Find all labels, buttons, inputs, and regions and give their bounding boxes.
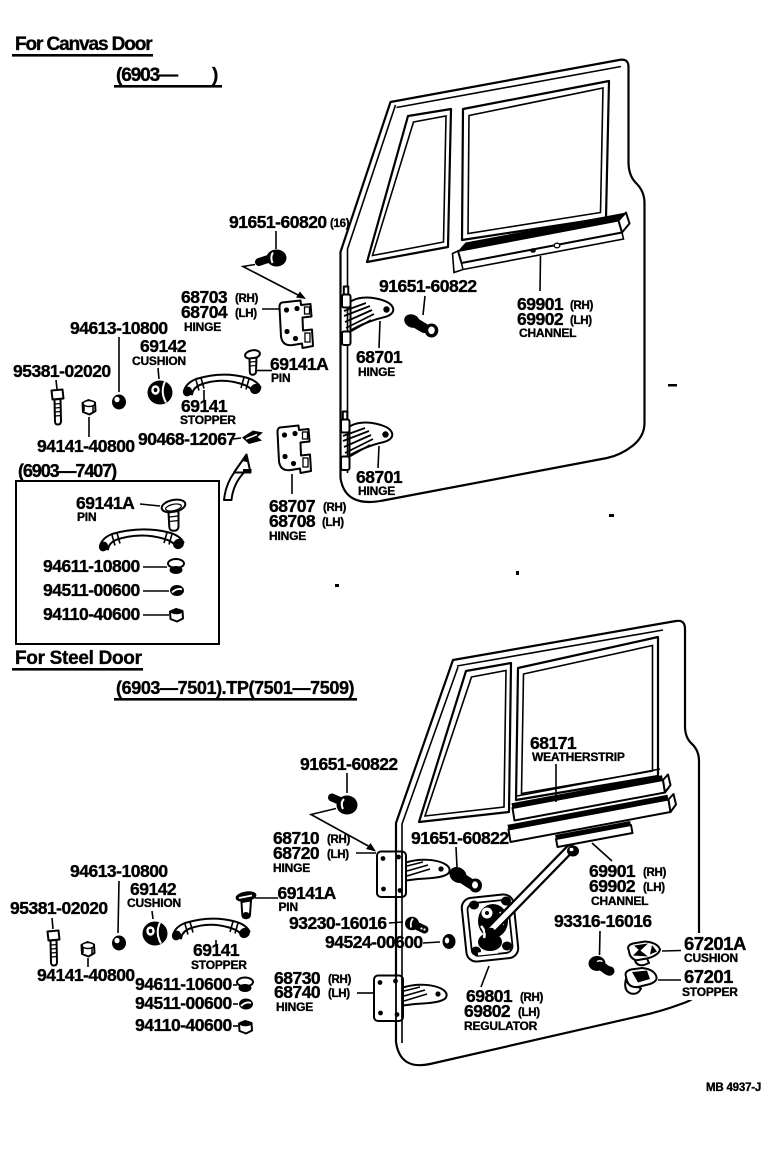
svg-text:94511-00600: 94511-00600 <box>43 580 140 600</box>
svg-text:95381-02020: 95381-02020 <box>10 898 108 918</box>
svg-text:(6903—7501).TP(7501—7509): (6903—7501).TP(7501—7509) <box>116 678 355 698</box>
svg-text:CUSHION: CUSHION <box>132 354 186 368</box>
svg-text:(RH): (RH) <box>643 867 667 879</box>
svg-text:94141-40800: 94141-40800 <box>37 965 135 985</box>
svg-text:(LH): (LH) <box>643 882 665 894</box>
svg-text:68708: 68708 <box>269 511 316 531</box>
svg-text:CHANNEL: CHANNEL <box>519 326 576 340</box>
svg-text:69141: 69141 <box>193 940 240 960</box>
svg-text:91651-60822: 91651-60822 <box>411 828 509 848</box>
svg-text:94613-10800: 94613-10800 <box>70 861 168 881</box>
svg-text:93316-16016: 93316-16016 <box>554 911 652 931</box>
svg-text:68704: 68704 <box>181 302 228 322</box>
svg-text:CHANNEL: CHANNEL <box>591 894 648 908</box>
svg-text:94110-40600: 94110-40600 <box>135 1015 232 1035</box>
svg-text:91651-60820: 91651-60820 <box>229 212 327 232</box>
svg-text:68701: 68701 <box>356 347 403 367</box>
svg-text:REGULATOR: REGULATOR <box>464 1019 538 1033</box>
svg-text:CUSHION: CUSHION <box>684 951 738 965</box>
svg-text:69802: 69802 <box>464 1001 511 1021</box>
svg-text:(RH): (RH) <box>323 502 347 514</box>
svg-text:(6903—7407): (6903—7407) <box>18 461 117 481</box>
svg-text:94613-10800: 94613-10800 <box>70 318 168 338</box>
svg-text:(LH): (LH) <box>322 517 344 529</box>
svg-text:(LH): (LH) <box>235 308 257 320</box>
svg-text:69902: 69902 <box>589 876 636 896</box>
svg-text:94110-40600: 94110-40600 <box>43 604 140 624</box>
svg-text:HINGE: HINGE <box>358 365 395 379</box>
svg-text:67201: 67201 <box>684 966 733 987</box>
svg-text:STOPPER: STOPPER <box>191 958 247 972</box>
svg-text:HINGE: HINGE <box>269 529 306 543</box>
svg-text:94611-10800: 94611-10800 <box>43 556 140 576</box>
svg-text:STOPPER: STOPPER <box>180 413 236 427</box>
svg-text:94511-00600: 94511-00600 <box>135 993 232 1013</box>
svg-text:68740: 68740 <box>274 982 321 1002</box>
svg-text:69142: 69142 <box>140 336 187 356</box>
svg-text:MB 4937-J: MB 4937-J <box>706 1082 761 1094</box>
svg-text:(16): (16) <box>330 218 350 230</box>
svg-text:94611-10600: 94611-10600 <box>135 974 232 994</box>
svg-text:91651-60822: 91651-60822 <box>300 754 398 774</box>
svg-text:): ) <box>212 65 218 86</box>
svg-text:(RH): (RH) <box>235 293 259 305</box>
svg-text:90468-12067: 90468-12067 <box>138 429 236 449</box>
svg-text:94141-40800: 94141-40800 <box>37 436 135 456</box>
svg-text:(RH): (RH) <box>327 834 351 846</box>
svg-text:HINGE: HINGE <box>276 1000 313 1014</box>
svg-text:94524-00600: 94524-00600 <box>325 932 423 952</box>
svg-text:(RH): (RH) <box>570 300 594 312</box>
svg-text:(6903—: (6903— <box>116 65 178 86</box>
svg-text:PIN: PIN <box>77 510 96 524</box>
svg-text:For Steel Door: For Steel Door <box>15 648 143 669</box>
svg-text:(LH): (LH) <box>328 988 350 1000</box>
svg-text:WEATHERSTRIP: WEATHERSTRIP <box>532 750 625 764</box>
svg-text:HINGE: HINGE <box>273 861 310 875</box>
svg-text:HINGE: HINGE <box>358 484 395 498</box>
svg-text:CUSHION: CUSHION <box>127 896 181 910</box>
svg-text:68720: 68720 <box>273 843 320 863</box>
svg-text:91651-60822: 91651-60822 <box>379 276 477 296</box>
svg-text:STOPPER: STOPPER <box>682 985 738 999</box>
svg-text:(RH): (RH) <box>328 974 352 986</box>
svg-text:PIN: PIN <box>271 371 290 385</box>
svg-text:PIN: PIN <box>279 900 298 914</box>
svg-text:For Canvas Door: For Canvas Door <box>15 34 153 55</box>
svg-text:HINGE: HINGE <box>184 320 221 334</box>
svg-text:93230-16016: 93230-16016 <box>289 913 387 933</box>
svg-text:(LH): (LH) <box>327 849 349 861</box>
svg-text:(RH): (RH) <box>520 992 544 1004</box>
svg-text:95381-02020: 95381-02020 <box>13 361 111 381</box>
svg-text:(LH): (LH) <box>518 1007 540 1019</box>
